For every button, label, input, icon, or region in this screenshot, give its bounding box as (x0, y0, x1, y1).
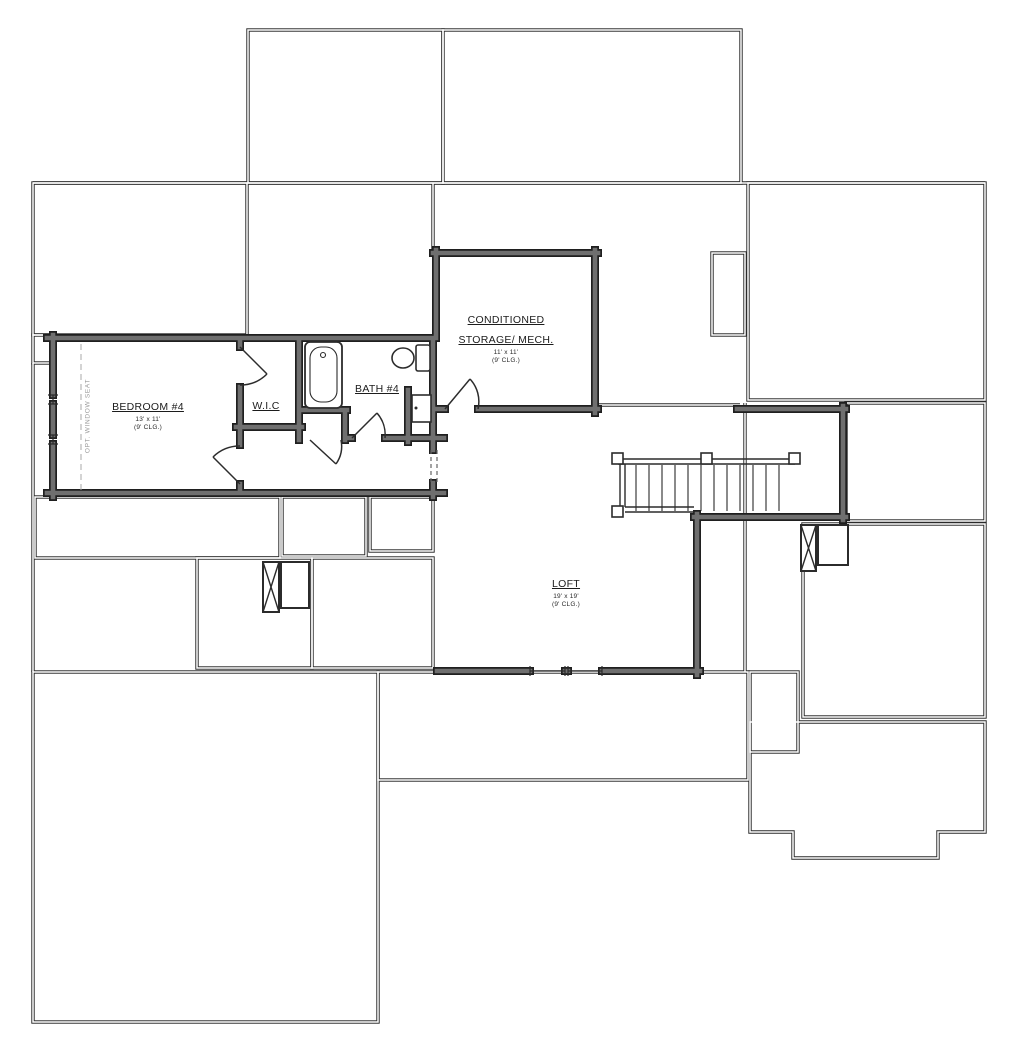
loft-size: 19' x 19' (552, 593, 580, 601)
bedroom-door-arc (213, 446, 240, 484)
floor-plan-drawing (0, 0, 1022, 1051)
bath-door-arc (352, 413, 385, 438)
bath4-name: BATH #4 (355, 383, 399, 396)
toilet-icon (392, 345, 430, 371)
storage-size: 11' x 11' (458, 349, 553, 357)
staircase (612, 453, 800, 517)
cabinet-door-icon (412, 395, 431, 422)
dashed-opening (431, 450, 437, 483)
storage-name-line2: STORAGE/ MECH. (458, 334, 553, 347)
wic-name: W.I.C (252, 400, 279, 413)
room-label-bath4: BATH #4 (355, 378, 399, 398)
stair-treads (636, 465, 779, 511)
wic-door-arc (240, 347, 267, 385)
loft-name: LOFT (552, 578, 580, 591)
storage-name-line1: CONDITIONED (468, 314, 545, 327)
opt-window-seat-note: OPT. WINDOW SEAT (85, 379, 92, 453)
loft-ceiling: (9' CLG.) (552, 601, 580, 609)
floor-plan-page: BEDROOM #4 13' x 11' (9' CLG.) W.I.C BAT… (0, 0, 1022, 1051)
room-label-storage-mech: CONDITIONED STORAGE/ MECH. 11' x 11' (9'… (458, 309, 553, 365)
storage-ceiling: (9' CLG.) (458, 357, 553, 365)
room-label-bedroom4: BEDROOM #4 13' x 11' (9' CLG.) (112, 396, 184, 432)
bathtub-icon (305, 342, 342, 408)
bedroom4-ceiling: (9' CLG.) (112, 424, 184, 432)
room-label-wic: W.I.C (252, 395, 279, 415)
storage-door-arc (445, 379, 479, 409)
room-label-loft: LOFT 19' x 19' (9' CLG.) (552, 573, 580, 609)
bedroom4-size: 13' x 11' (112, 416, 184, 424)
hall-closet-door-arc (310, 440, 342, 464)
bedroom4-name: BEDROOM #4 (112, 401, 184, 414)
